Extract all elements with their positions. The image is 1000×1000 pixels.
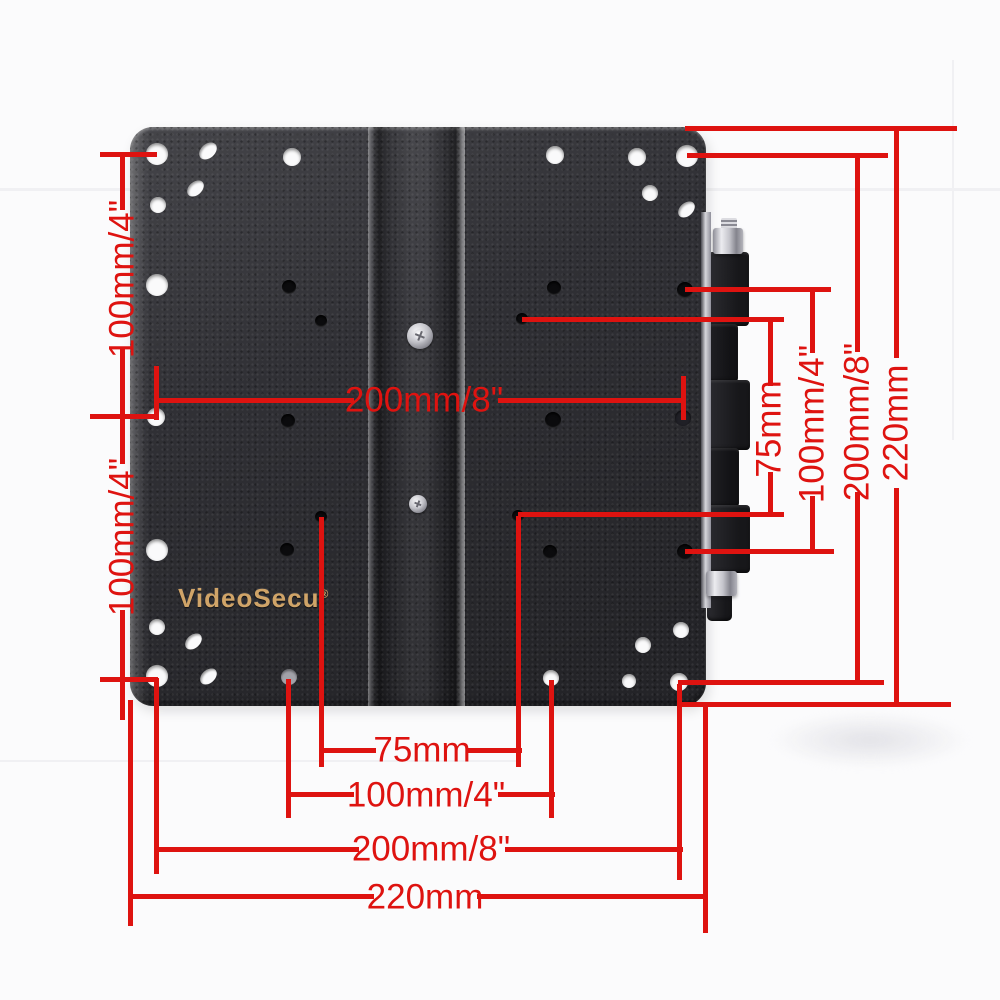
dim-line xyxy=(498,792,555,797)
dim-label-right-75mm: 75mm xyxy=(752,380,787,477)
dim-label-center-width: 200mm/8" xyxy=(345,383,503,418)
mounting-hole xyxy=(283,148,301,166)
dim-label-bottom-200mm: 200mm/8" xyxy=(352,832,510,867)
dim-tick xyxy=(677,684,682,880)
mounting-hole xyxy=(149,619,165,635)
hex-nut-top xyxy=(713,228,743,254)
mounting-hole xyxy=(282,280,296,294)
bracket-shadow xyxy=(770,712,970,768)
mounting-hole xyxy=(543,545,557,559)
dim-line xyxy=(120,610,125,720)
dim-tick xyxy=(154,678,159,874)
dim-line xyxy=(468,748,522,753)
dim-line xyxy=(156,398,354,403)
dim-label-left-bottom: 100mm/4" xyxy=(105,458,140,616)
dim-tick xyxy=(549,680,554,818)
mounting-hole xyxy=(146,274,168,296)
dim-tick xyxy=(685,126,957,131)
dim-line xyxy=(855,492,860,685)
dim-label-bottom-75mm: 75mm xyxy=(373,733,470,768)
hex-nut-bottom xyxy=(706,571,737,596)
brand-name: VideoSecu xyxy=(178,583,319,613)
dim-line xyxy=(498,398,685,403)
dim-tick xyxy=(319,517,324,767)
mounting-hole xyxy=(545,412,561,428)
mounting-hole xyxy=(628,148,646,166)
dim-tick xyxy=(516,516,521,767)
dim-label-bottom-100mm: 100mm/4" xyxy=(347,778,505,813)
dim-label-right-200mm: 200mm/8" xyxy=(840,343,875,501)
dim-line xyxy=(894,488,899,707)
dim-tick xyxy=(682,702,951,707)
philips-screw-icon xyxy=(413,329,427,343)
mounting-hole xyxy=(547,281,561,295)
dim-line xyxy=(810,287,815,353)
mounting-hole xyxy=(635,637,651,653)
dim-tick xyxy=(678,680,884,685)
mounting-hole xyxy=(673,622,689,638)
background-seam xyxy=(952,60,954,440)
dim-line xyxy=(156,847,359,852)
dim-label-right-220mm: 220mm xyxy=(879,365,914,482)
bracket-arm-block xyxy=(706,380,750,450)
dim-tick xyxy=(100,152,157,157)
dim-line xyxy=(768,472,773,517)
bracket-arm-neck xyxy=(708,324,738,382)
dim-line xyxy=(322,748,376,753)
mounting-hole xyxy=(281,414,295,428)
dim-label-left-top: 100mm/4" xyxy=(105,200,140,358)
mounting-hole xyxy=(146,539,168,561)
mounting-hole xyxy=(642,185,658,201)
dim-label-bottom-220mm: 220mm xyxy=(367,880,484,915)
dim-line xyxy=(505,847,683,852)
dim-tick xyxy=(703,705,708,933)
dim-tick xyxy=(681,376,686,420)
dim-line xyxy=(894,126,899,358)
dim-line xyxy=(855,153,860,352)
dim-line xyxy=(130,894,374,899)
mounting-hole xyxy=(150,197,166,213)
dim-tick xyxy=(522,317,784,322)
dim-line xyxy=(477,894,708,899)
dim-tick xyxy=(128,700,133,926)
dim-label-right-100mm: 100mm/4" xyxy=(795,345,830,503)
dim-tick xyxy=(286,679,291,818)
dim-tick xyxy=(154,366,159,420)
dim-line xyxy=(288,792,354,797)
dim-tick xyxy=(518,512,784,517)
philips-screw-icon xyxy=(413,499,423,509)
mount-plate-dimension-diagram: VideoSecu® xyxy=(0,0,1000,1000)
mounting-hole xyxy=(622,674,636,688)
dim-line xyxy=(120,348,125,464)
dim-tick xyxy=(100,677,158,682)
dim-line xyxy=(810,496,815,554)
bracket-arm-neck xyxy=(708,448,739,507)
brand-logo: VideoSecu® xyxy=(178,583,328,614)
dim-line xyxy=(768,317,773,386)
mounting-hole xyxy=(280,543,294,557)
mounting-hole xyxy=(546,146,564,164)
mounting-hole xyxy=(315,315,327,327)
